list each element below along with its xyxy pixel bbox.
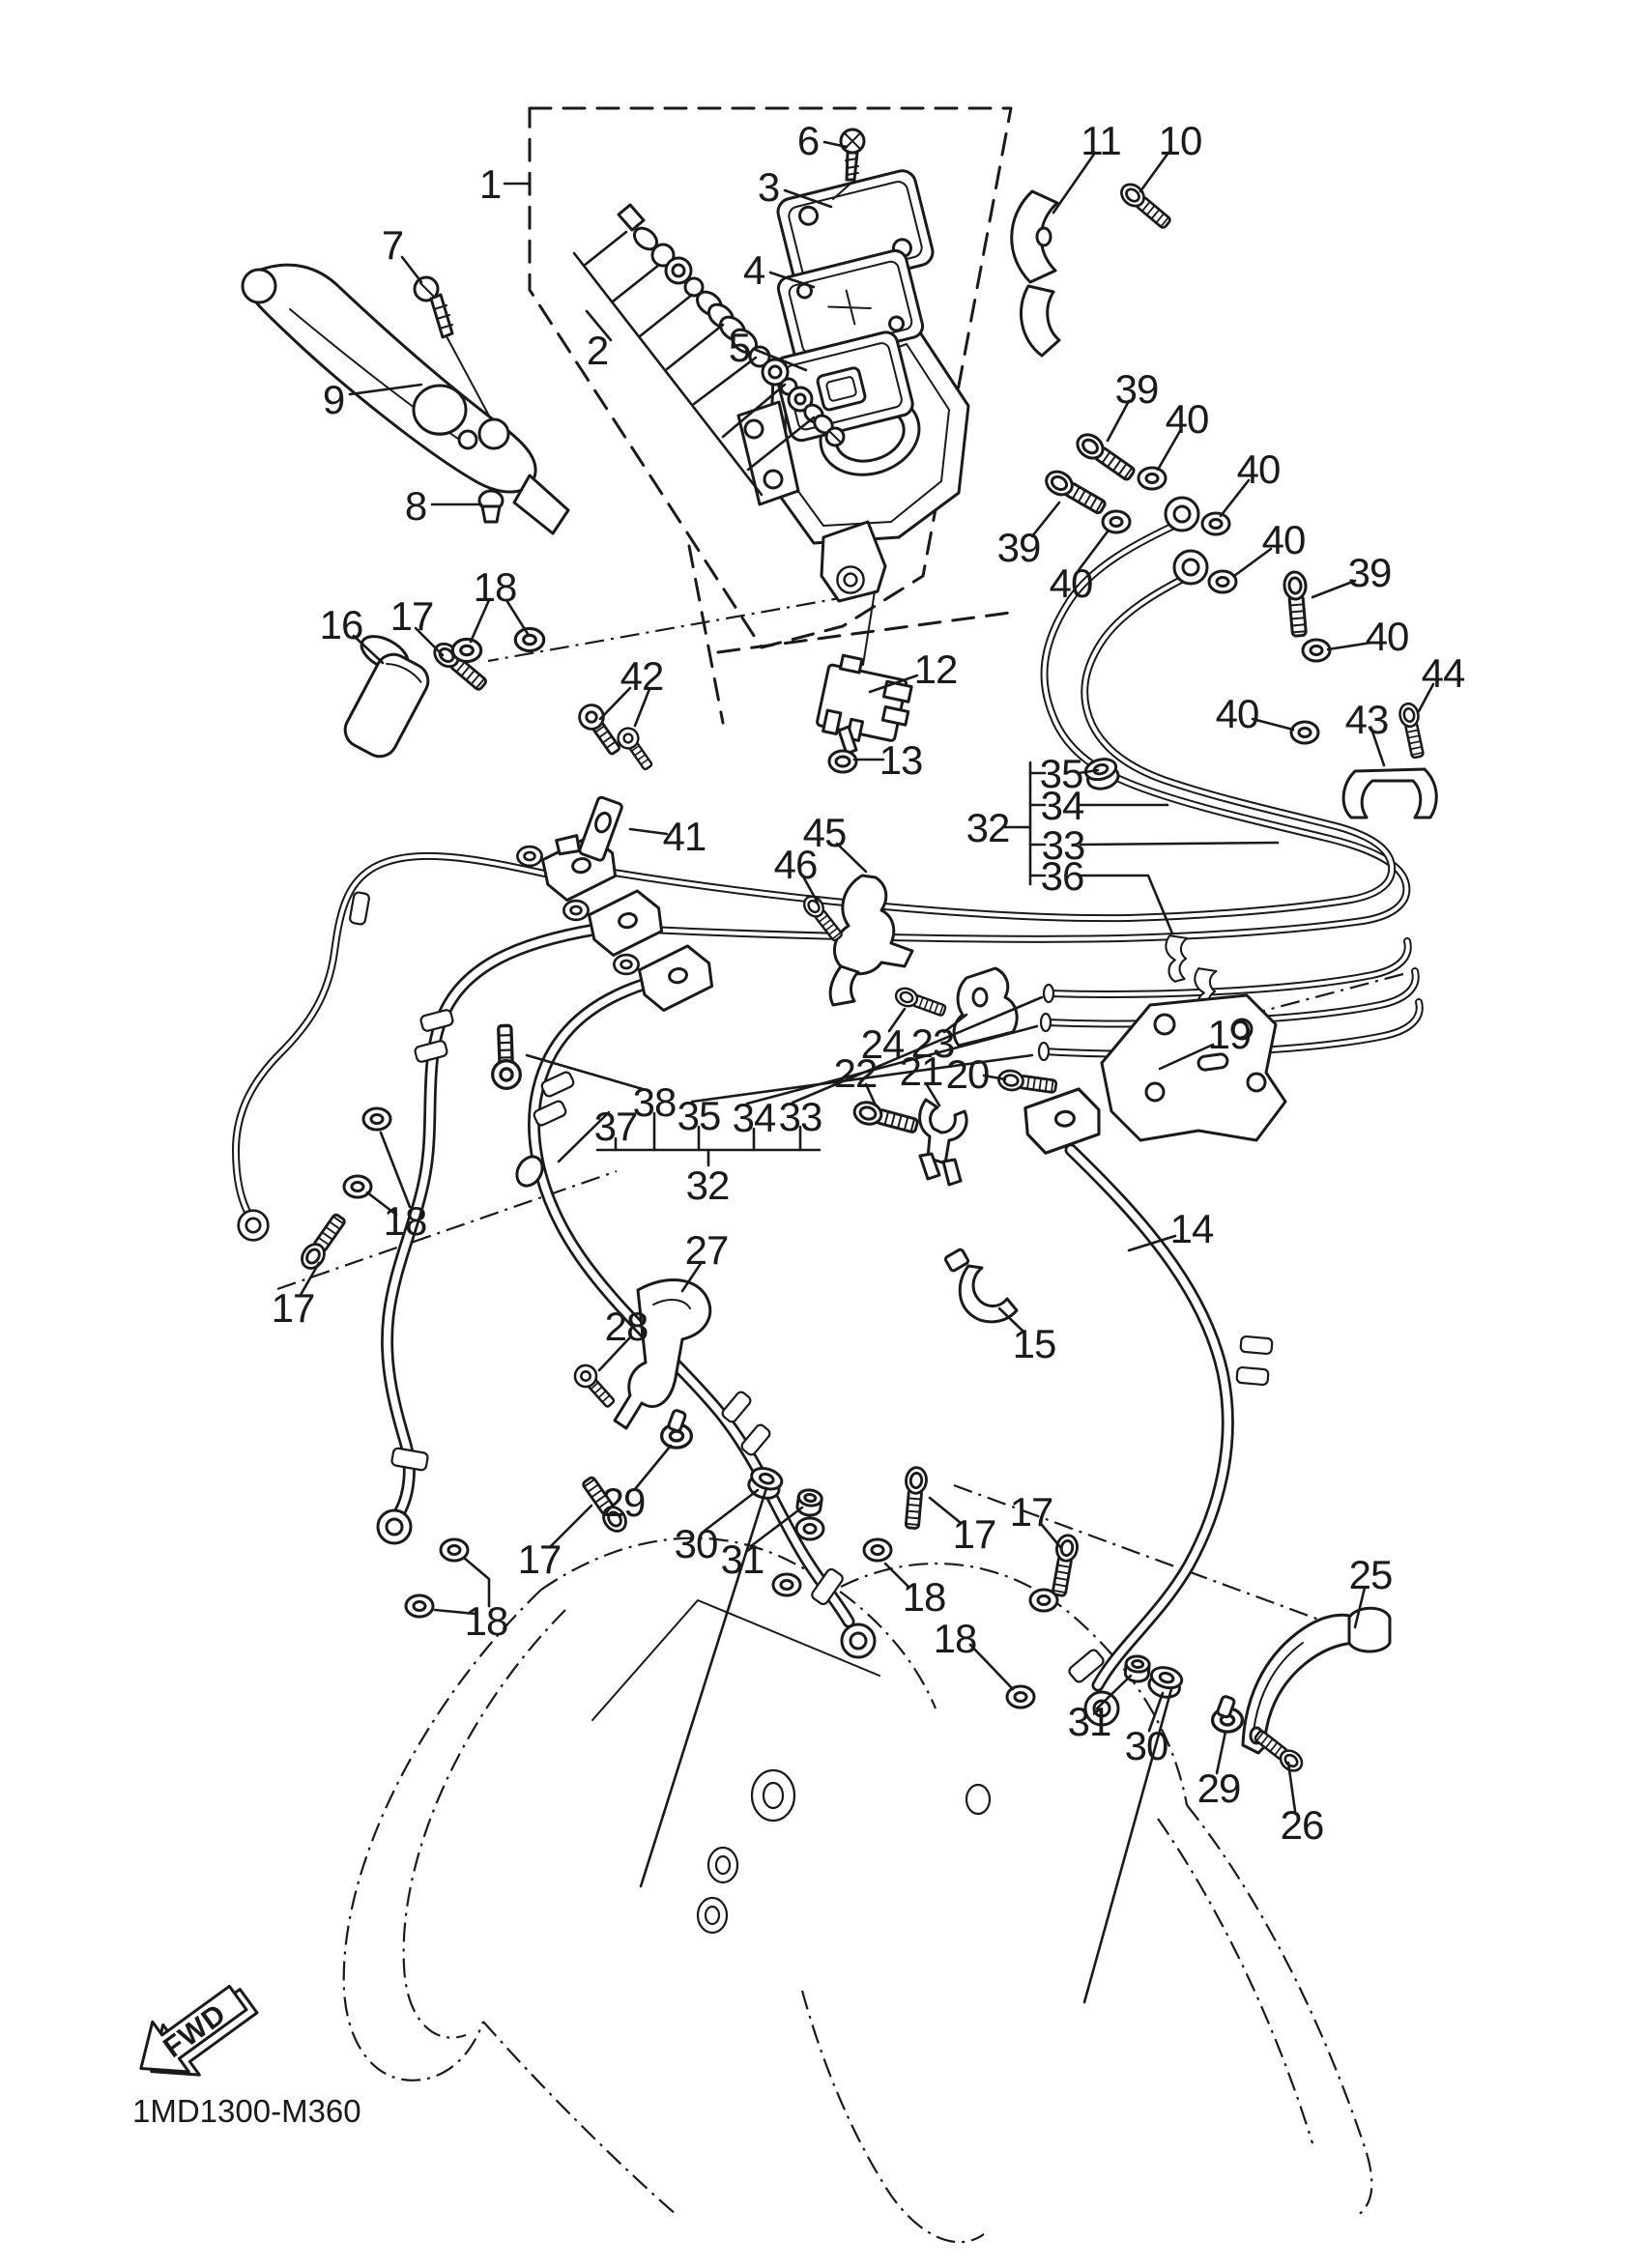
screw-42 [615, 725, 657, 774]
bolt-17 [1049, 1534, 1079, 1596]
leader-line-41 [630, 829, 667, 834]
pipe-clamp-36 [1166, 935, 1187, 982]
hose-banjo-center [842, 1624, 875, 1657]
washer-40 [1209, 571, 1236, 592]
leader-line-18b [381, 1133, 410, 1207]
diagram-page: 1234567891011121314151617171717171818181… [0, 0, 1643, 2268]
washer-18 [344, 1176, 371, 1197]
washer-18 [864, 1539, 891, 1561]
callout-26: 26 [1281, 1802, 1324, 1848]
bolt-39 [1283, 571, 1311, 637]
callout-40c: 40 [1237, 446, 1281, 492]
union-washer [614, 955, 638, 974]
callout-2: 2 [587, 328, 608, 373]
leader-line-7 [402, 257, 421, 282]
annotation-line [584, 232, 626, 266]
pipe-eyelet [1166, 498, 1198, 531]
union-block [637, 942, 717, 1014]
pipe-bracket-19 [1102, 995, 1285, 1140]
joint-pipe-16 [339, 629, 434, 762]
bolt-39 [1073, 430, 1138, 484]
callout-14: 14 [1170, 1206, 1214, 1251]
fwd-arrow: FWD [123, 1969, 267, 2101]
artwork [236, 108, 1436, 2242]
washer-18 [452, 639, 480, 661]
annotation-line [613, 265, 659, 301]
lever-adjuster [414, 386, 466, 434]
parts-diagram-svg: 1234567891011121314151617171717171818181… [0, 0, 1643, 2268]
brake-switch-12 [815, 653, 916, 750]
callout-4: 4 [743, 247, 765, 293]
callout-24: 24 [861, 1021, 905, 1067]
callout-18b: 18 [384, 1198, 427, 1244]
callout-27: 27 [685, 1227, 729, 1273]
callout-13: 13 [879, 737, 923, 783]
bolt-17 [298, 1212, 349, 1273]
callout-32a: 32 [966, 805, 1010, 850]
hose-guide-27 [615, 1279, 710, 1428]
callout-33b: 33 [779, 1094, 822, 1139]
clamp-bolt-10 [1117, 180, 1173, 231]
callout-18c: 18 [465, 1598, 508, 1644]
callout-30a: 30 [675, 1521, 718, 1566]
hose-collar [414, 1040, 447, 1063]
callout-18a: 18 [474, 564, 517, 610]
washer-18 [773, 1574, 800, 1595]
pivot-nut-8 [479, 491, 503, 522]
callout-40b: 40 [1050, 560, 1093, 606]
washer-40 [1103, 511, 1130, 532]
hose-clamp-15 [944, 1249, 1017, 1322]
callout-29a: 29 [602, 1479, 646, 1525]
callout-39a: 39 [1115, 366, 1159, 412]
bolt-20 [997, 1069, 1057, 1096]
pipe-end [1039, 1043, 1049, 1060]
callout-17c: 17 [518, 1536, 562, 1582]
callout-18d: 18 [903, 1574, 946, 1620]
washer-18 [1030, 1590, 1057, 1611]
hose-collar [1240, 1336, 1272, 1355]
washer-18 [406, 1595, 433, 1617]
callout-17a: 17 [390, 593, 434, 639]
washer-18 [363, 1108, 390, 1130]
pipe-eyelet [1174, 551, 1207, 584]
bolt-22 [852, 1100, 919, 1136]
callout-39c: 39 [1348, 550, 1392, 595]
callout-3: 3 [758, 164, 779, 210]
union-block [587, 887, 667, 959]
callout-5: 5 [729, 325, 750, 370]
hose-banjo-left [378, 1510, 411, 1543]
callout-25: 25 [1349, 1552, 1393, 1597]
hose-collar [1236, 1367, 1268, 1386]
washer-40 [1139, 468, 1166, 489]
clamp-bolt-44 [1398, 702, 1427, 759]
grommet-30 [1146, 1664, 1184, 1700]
callout-1: 1 [479, 161, 501, 207]
hose-collar [721, 1391, 753, 1424]
union-washer [563, 901, 588, 920]
callout-28: 28 [605, 1304, 649, 1349]
collar-29 [1213, 1696, 1243, 1733]
fender-hole [966, 1785, 990, 1814]
hose-collar [349, 892, 369, 925]
callout-10: 10 [1159, 118, 1202, 163]
callout-35a: 35 [1040, 751, 1083, 796]
callout-34b: 34 [733, 1095, 776, 1140]
callout-31a: 31 [721, 1536, 764, 1582]
callout-11: 11 [1081, 118, 1121, 163]
callout-15: 15 [1013, 1321, 1056, 1366]
hose-fitting [391, 1448, 429, 1471]
callout-35b: 35 [677, 1093, 721, 1138]
annotation-line [667, 325, 723, 369]
callout-37: 37 [594, 1104, 638, 1149]
callout-6: 6 [797, 118, 819, 163]
washer-40 [1291, 722, 1318, 743]
hose-collar [740, 1423, 772, 1457]
union-block [1024, 1087, 1103, 1154]
callout-41: 41 [663, 814, 706, 859]
nut-31 [796, 1488, 822, 1516]
collar-29 [662, 1410, 692, 1449]
lever-pivot-hole [479, 419, 508, 448]
callout-36: 36 [1041, 853, 1084, 899]
callout-19: 19 [1208, 1012, 1252, 1057]
callout-17d: 17 [953, 1511, 996, 1557]
callout-40d: 40 [1262, 517, 1306, 562]
callout-17b: 17 [272, 1285, 315, 1331]
brake-hoses [236, 856, 1273, 1725]
callout-8: 8 [405, 483, 426, 529]
callout-29b: 29 [1197, 1766, 1241, 1811]
union-washer [517, 847, 541, 866]
callout-9: 9 [323, 377, 344, 422]
callout-30b: 30 [1125, 1723, 1168, 1768]
screw-42 [575, 701, 625, 759]
washer-18 [515, 628, 543, 650]
annotation-line [640, 295, 692, 336]
leader-line-36 [1080, 876, 1172, 933]
callout-40e: 40 [1366, 614, 1409, 659]
callout-7: 7 [382, 222, 403, 268]
washer-18 [1007, 1686, 1034, 1708]
callout-40a: 40 [1166, 396, 1209, 442]
callout-43: 43 [1345, 697, 1389, 742]
pipe-clamp-43 [1343, 769, 1436, 818]
callout-46: 46 [774, 842, 818, 887]
callout-32b: 32 [686, 1163, 730, 1208]
callout-18e: 18 [934, 1616, 977, 1661]
hose-eyelet [239, 1211, 269, 1241]
hose-collar [419, 1009, 453, 1032]
callout-38: 38 [633, 1079, 677, 1125]
callout-16: 16 [320, 602, 363, 647]
callout-42: 42 [620, 653, 664, 699]
pipe-end [1044, 985, 1053, 1002]
callout-31b: 31 [1068, 1699, 1111, 1744]
callout-40f: 40 [1216, 691, 1259, 736]
washer-40 [1202, 513, 1229, 534]
socket-bolt-38 [491, 1025, 521, 1089]
diagram-code: 1MD1300-M360 [132, 2093, 361, 2129]
washer-40 [1303, 640, 1330, 661]
callout-12: 12 [914, 646, 958, 692]
bolt-17 [902, 1467, 927, 1529]
leader-line-33a [1081, 843, 1278, 845]
handlebar-clamp-11 [1012, 191, 1059, 356]
leader-line-18e [970, 1645, 1013, 1689]
pipe-end [1041, 1014, 1051, 1031]
hose-clamp-21 [920, 1100, 966, 1185]
callout-44: 44 [1422, 650, 1465, 696]
callout-17e: 17 [1010, 1489, 1053, 1535]
washer-18 [796, 1518, 823, 1539]
callout-23: 23 [911, 1020, 955, 1066]
callout-39b: 39 [997, 525, 1041, 570]
hose-bracket-25 [1243, 1608, 1390, 1753]
screw-28 [570, 1361, 619, 1411]
lever-tip [243, 270, 275, 302]
